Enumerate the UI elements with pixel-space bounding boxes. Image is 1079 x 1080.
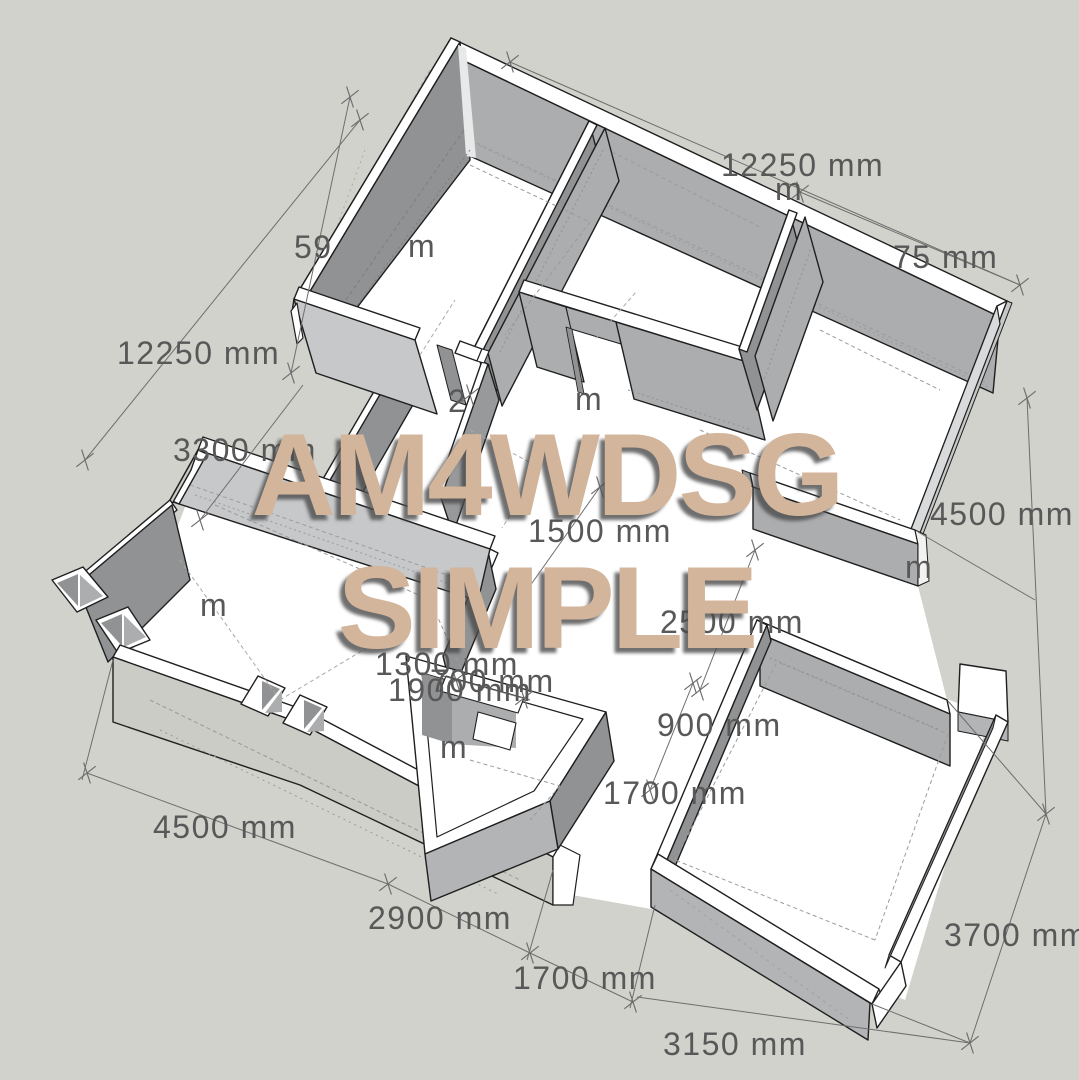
svg-text:3150 mm: 3150 mm bbox=[663, 1026, 807, 1062]
svg-text:2900 mm: 2900 mm bbox=[368, 900, 512, 936]
svg-text:1700 mm: 1700 mm bbox=[603, 775, 747, 811]
svg-text:12250 mm: 12250 mm bbox=[117, 335, 280, 371]
svg-text:4500 mm: 4500 mm bbox=[153, 809, 297, 845]
svg-text:59: 59 bbox=[294, 229, 333, 265]
svg-text:m: m bbox=[408, 228, 436, 264]
svg-text:75 mm: 75 mm bbox=[893, 239, 998, 275]
svg-text:m: m bbox=[775, 171, 803, 207]
svg-text:1700 mm: 1700 mm bbox=[513, 960, 657, 996]
svg-text:3700 mm: 3700 mm bbox=[944, 917, 1079, 953]
svg-text:1900 mm: 1900 mm bbox=[388, 672, 532, 708]
svg-text:m: m bbox=[440, 729, 468, 765]
svg-text:900 mm: 900 mm bbox=[657, 707, 782, 743]
